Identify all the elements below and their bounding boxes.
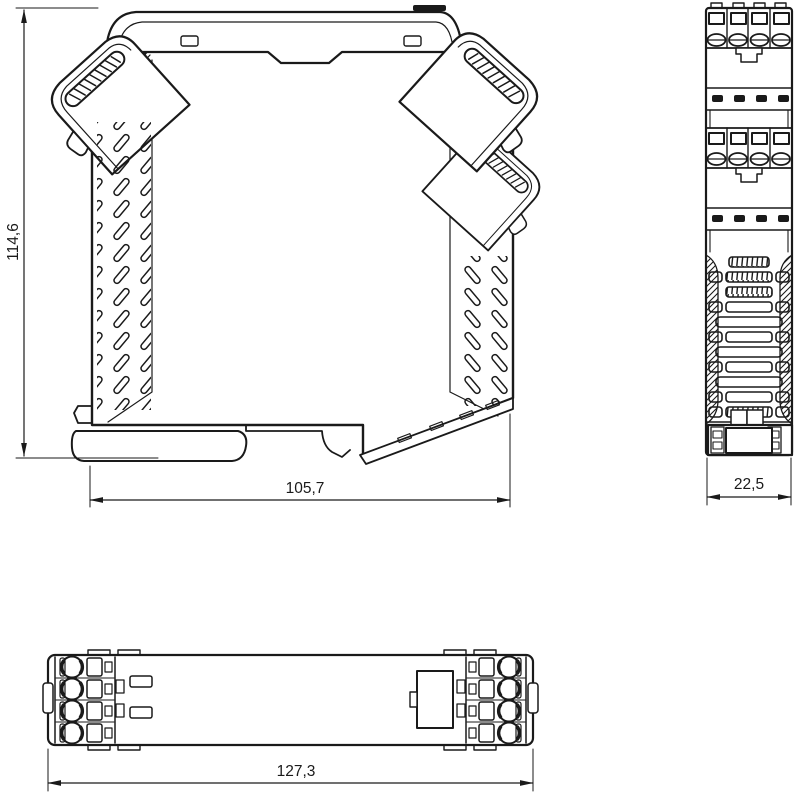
foot-hook [246, 425, 350, 457]
front-body-outline [706, 8, 792, 455]
din-rail-module-drawing: 114,6 105,7 22,5 127,3 [0, 0, 800, 800]
dimension-width-side-label: 105,7 [286, 480, 325, 497]
front-side-vents-right [780, 255, 792, 424]
lid-coding-tab [413, 5, 446, 11]
front-side-vents-left [706, 255, 718, 424]
foot-release-tab [74, 406, 92, 423]
top-connector-tab [410, 692, 417, 707]
dimension-height-label: 114,6 [5, 223, 22, 261]
technical-drawing-canvas: 114,6 105,7 22,5 127,3 [0, 0, 800, 800]
top-body-outline [48, 655, 533, 745]
dimension-width-front: 22,5 [707, 458, 791, 505]
dimension-width-front-label: 22,5 [734, 476, 764, 493]
top-view [43, 650, 538, 750]
vent-slots-right [461, 256, 515, 406]
foot-latch [72, 431, 247, 461]
top-connector-opening [417, 671, 453, 728]
side-view [33, 5, 556, 464]
dimension-width-top: 127,3 [48, 749, 533, 791]
dimension-width-top-label: 127,3 [277, 763, 316, 780]
front-view [706, 3, 792, 455]
vent-slots-left [97, 122, 151, 410]
